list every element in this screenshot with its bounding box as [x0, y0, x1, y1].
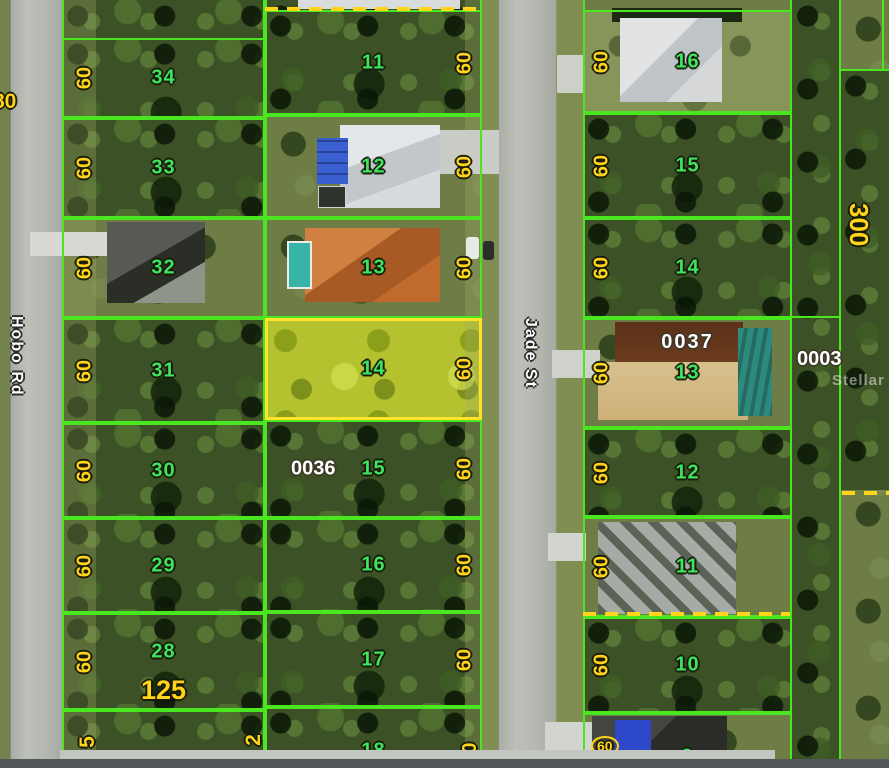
lot-13-right-frontage-dim: 60 — [591, 362, 614, 384]
lot-15-mid-parcel: 15 60 0036 — [265, 420, 482, 518]
lot-15-mid-number: 15 — [361, 458, 385, 481]
lot-16-mid-parcel: 16 60 — [265, 518, 482, 612]
lot-17-mid-parcel: 17 60 — [265, 612, 482, 707]
lot-17-mid-number: 17 — [361, 648, 385, 671]
lot-12-mid-number: 12 — [361, 155, 385, 178]
lot-11-right-number: 11 — [676, 556, 699, 579]
lot-12-mid-frontage-dim: 60 — [453, 155, 476, 177]
street-label-hobo-rd: Hobo Rd — [7, 316, 25, 397]
lot-11-mid-parcel: 11 60 — [265, 10, 482, 115]
lot-17-mid-frontage-dim: 60 — [453, 648, 476, 670]
lot-34-frontage-dim: 60 — [74, 67, 97, 89]
lot-16-mid-frontage-dim: 60 — [453, 554, 476, 576]
lot-11-mid-frontage-dim: 60 — [453, 51, 476, 73]
bottom-dark-bar — [0, 759, 889, 768]
street-label-jade-st: Jade St — [521, 318, 539, 389]
pool-lot-13-mid — [287, 241, 312, 289]
boundary-line-corner-vertical — [882, 0, 884, 70]
house-roof-lot-12-mid — [340, 125, 440, 208]
lot-13-mid-number: 13 — [361, 257, 385, 280]
dashed-boundary-line-lot10 — [583, 612, 790, 616]
screen-structure-lot-12-mid — [318, 186, 346, 208]
lot-16-mid-number: 16 — [361, 554, 385, 577]
lot-12-right-frontage-dim: 60 — [591, 461, 614, 483]
lot-15-right-frontage-dim: 60 — [591, 154, 614, 176]
aerial-plat-map: 34 60 33 60 32 60 31 60 30 60 29 60 28 6… — [0, 0, 889, 768]
lot-29-number: 29 — [151, 554, 175, 577]
lot-15-right-parcel: 15 60 — [583, 113, 792, 218]
dim-bottom-center-partial: 2 — [242, 734, 266, 746]
lot-31-number: 31 — [151, 359, 175, 382]
lot-10-right-frontage-dim: 60 — [591, 654, 614, 676]
lot-28-frontage-dim: 60 — [74, 650, 97, 672]
pool-enclosure-lot-13-right — [738, 328, 772, 416]
lot-31-frontage-dim: 60 — [74, 359, 97, 381]
parked-car-light — [466, 237, 479, 259]
dashed-boundary-line-top — [265, 7, 482, 11]
lot-32-frontage-dim: 60 — [74, 257, 97, 279]
lot-29-frontage-dim: 60 — [74, 554, 97, 576]
east-parcel-trees — [840, 70, 889, 490]
lot-14-mid-parcel-highlighted: 14 60 — [265, 318, 482, 420]
lot-15-mid-frontage-dim: 60 — [453, 458, 476, 480]
lot-10-right-parcel: 10 60 — [583, 617, 792, 713]
house-roof-lot-16-right — [620, 18, 722, 102]
boundary-line-strip — [792, 316, 840, 318]
house-roof-lower-lot-13-right — [598, 362, 748, 420]
lot-14-right-parcel: 14 60 — [583, 218, 792, 318]
east-parcel-id-0003: 0003 — [797, 348, 842, 371]
watermark-stellar: Stellar — [832, 372, 885, 389]
dim-bottom-left-partial: 5 — [76, 736, 100, 748]
driveway-lot-16-right — [557, 55, 585, 93]
lot-32-number: 32 — [151, 257, 175, 280]
lot-28-depth-dim: 125 — [141, 675, 186, 706]
lot-14-mid-number: 14 — [361, 358, 385, 381]
lot-16-right-number: 16 — [675, 50, 699, 73]
house-roof-lot-11-right — [598, 522, 736, 614]
lot-10-right-number: 10 — [675, 654, 699, 677]
lot-13-mid-frontage-dim: 60 — [453, 257, 476, 279]
lot-14-right-frontage-dim: 60 — [591, 257, 614, 279]
parked-car-dark — [483, 241, 494, 260]
dim-west-edge-partial: 80 — [0, 90, 16, 114]
lot-16-right-frontage-dim: 60 — [591, 50, 614, 72]
lot-15-parcel-id: 0036 — [291, 458, 336, 481]
lot-30-frontage-dim: 60 — [74, 459, 97, 481]
driveway-lot-11-right — [548, 533, 586, 561]
lot-28-number: 28 — [151, 640, 175, 663]
lot-14-mid-frontage-dim: 60 — [453, 358, 476, 380]
lot-12-right-parcel: 12 60 — [583, 428, 792, 517]
lot-13-right-parcel-id: 0037 — [661, 331, 714, 354]
lot-14-right-number: 14 — [675, 257, 699, 280]
dim-east-depth-300: 300 — [843, 203, 874, 246]
lot-30-number: 30 — [151, 459, 175, 482]
lot-13-right-number: 13 — [675, 362, 699, 385]
lot-11-right-frontage-dim: 60 — [591, 556, 614, 578]
lot-11-mid-number: 11 — [362, 51, 385, 74]
dashed-boundary-line-east — [842, 491, 889, 495]
lot-33-number: 33 — [151, 157, 175, 180]
lot-12-right-number: 12 — [675, 461, 699, 484]
solar-pool-panel-lot-12-mid — [317, 138, 348, 184]
lot-33-frontage-dim: 60 — [74, 157, 97, 179]
driveway-lot-32 — [30, 232, 108, 256]
mowed-strip-east — [555, 0, 583, 768]
lot-34-number: 34 — [151, 67, 175, 90]
lot-15-right-number: 15 — [675, 154, 699, 177]
